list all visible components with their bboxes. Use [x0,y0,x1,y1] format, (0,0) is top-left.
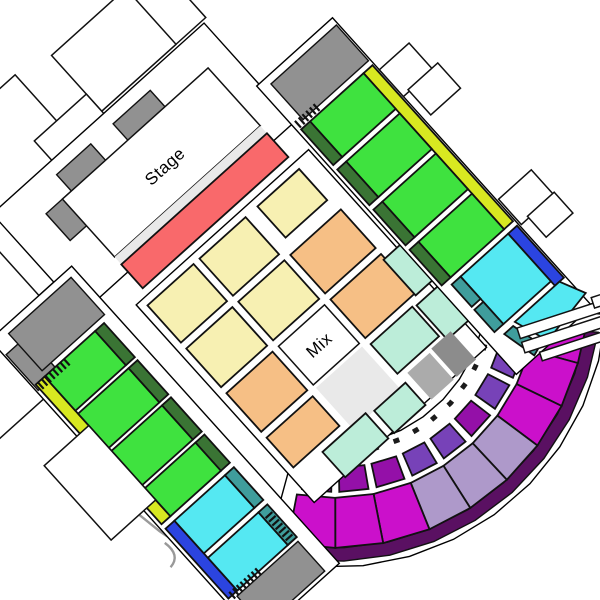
seating-map: Stage Mix [0,0,600,600]
